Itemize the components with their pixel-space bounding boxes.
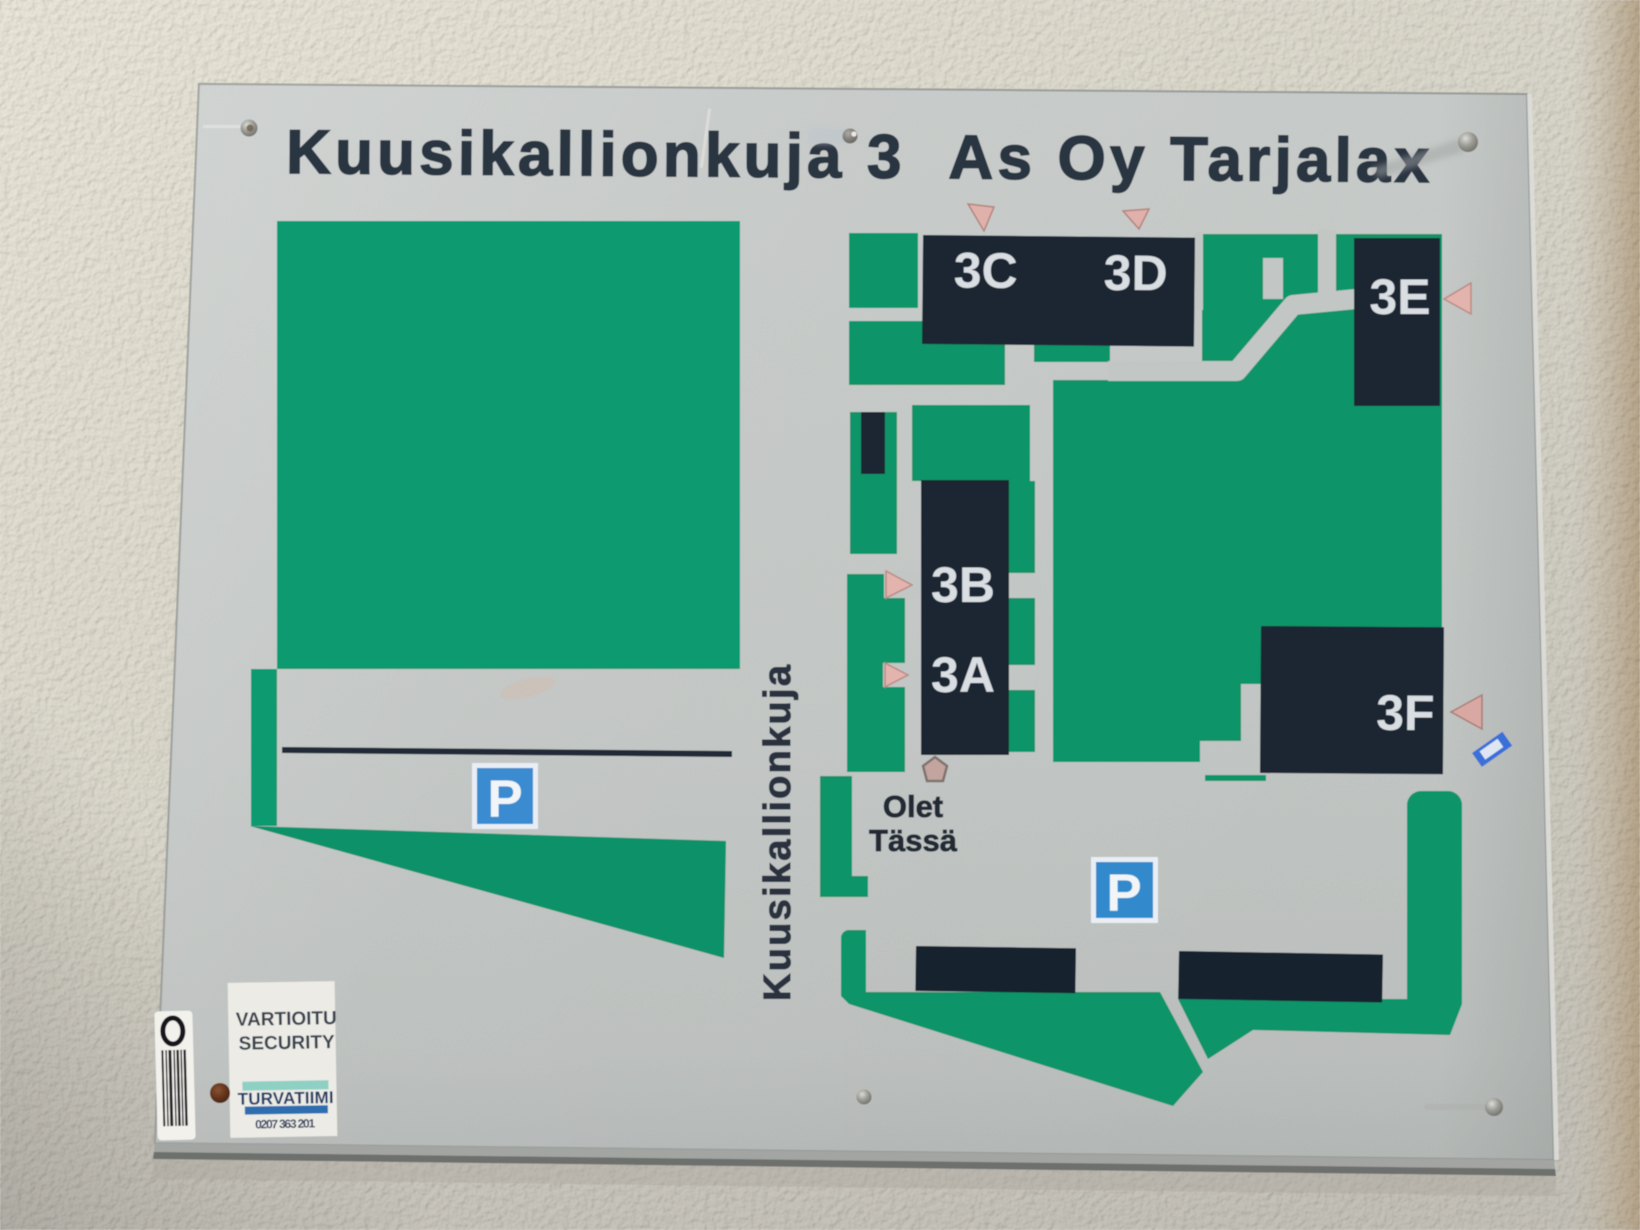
- svg-text:P: P: [1106, 864, 1141, 923]
- svg-text:Tässä: Tässä: [869, 823, 958, 858]
- svg-text:Kuusikallionkuja: Kuusikallionkuja: [757, 664, 799, 1001]
- svg-text:3D: 3D: [1103, 245, 1167, 302]
- svg-text:P: P: [487, 770, 522, 829]
- svg-text:3E: 3E: [1369, 269, 1430, 325]
- svg-text:SECURITY: SECURITY: [238, 1032, 335, 1055]
- svg-text:Olet: Olet: [883, 789, 943, 824]
- svg-text:3A: 3A: [931, 647, 995, 703]
- svg-text:3F: 3F: [1376, 685, 1435, 741]
- svg-text:VARTIOITU: VARTIOITU: [236, 1008, 337, 1031]
- svg-text:3C: 3C: [953, 242, 1017, 299]
- svg-text:0207 363 201: 0207 363 201: [255, 1116, 316, 1131]
- svg-text:Kuusikallionkuja 3 As Oy Tarj: Kuusikallionkuja 3 As Oy Tarjalax: [286, 118, 1430, 196]
- svg-text:3B: 3B: [931, 557, 995, 613]
